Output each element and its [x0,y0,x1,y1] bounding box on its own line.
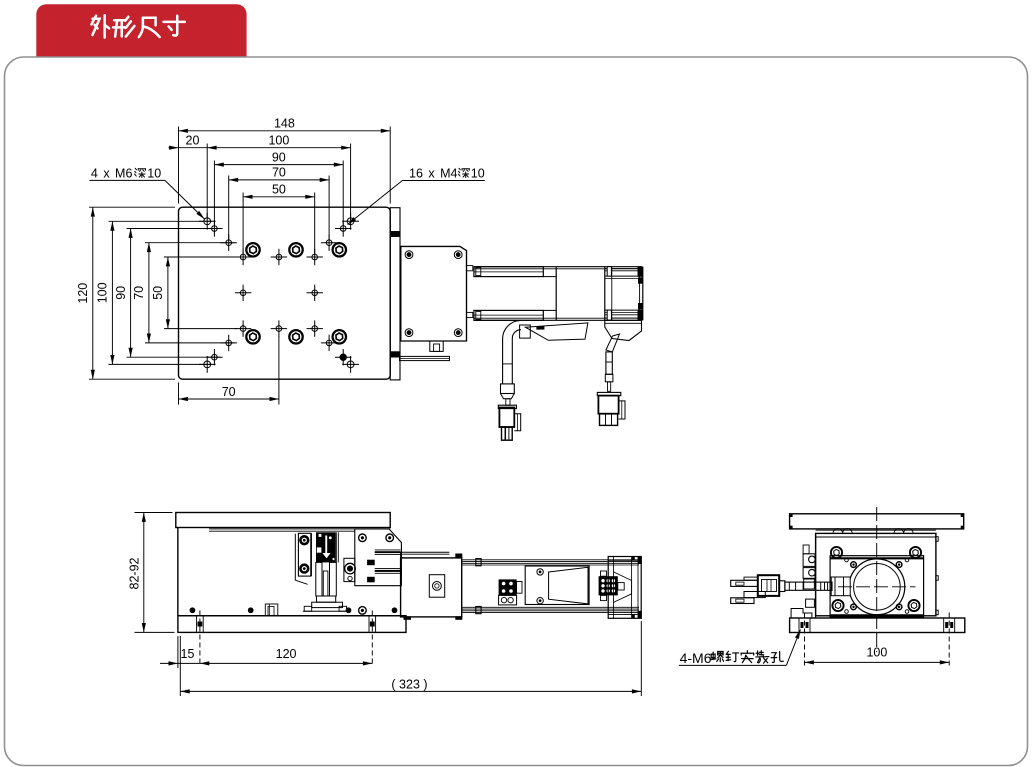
svg-text:10: 10 [147,167,161,181]
svg-text:148: 148 [274,117,295,131]
svg-text:90: 90 [114,286,128,300]
svg-text:70: 70 [132,286,146,300]
svg-text:16 x M4: 16 x M4 [409,167,458,181]
svg-text:4-M6: 4-M6 [680,650,712,666]
svg-text:10: 10 [471,167,485,181]
svg-text:70: 70 [272,166,286,180]
svg-text:90: 90 [272,150,286,164]
svg-text:82-92: 82-92 [128,557,142,589]
svg-text:100: 100 [866,646,887,660]
svg-text:100: 100 [268,134,289,148]
svg-text:15: 15 [181,647,195,661]
svg-text:4 x M6: 4 x M6 [91,167,133,181]
svg-text:50: 50 [272,183,286,197]
svg-text:70: 70 [222,385,236,399]
svg-text:( 323 ): ( 323 ) [391,677,427,691]
svg-text:120: 120 [276,647,297,661]
svg-text:50: 50 [151,286,165,300]
svg-text:20: 20 [186,133,200,147]
svg-text:100: 100 [96,282,110,303]
svg-text:120: 120 [76,283,90,304]
